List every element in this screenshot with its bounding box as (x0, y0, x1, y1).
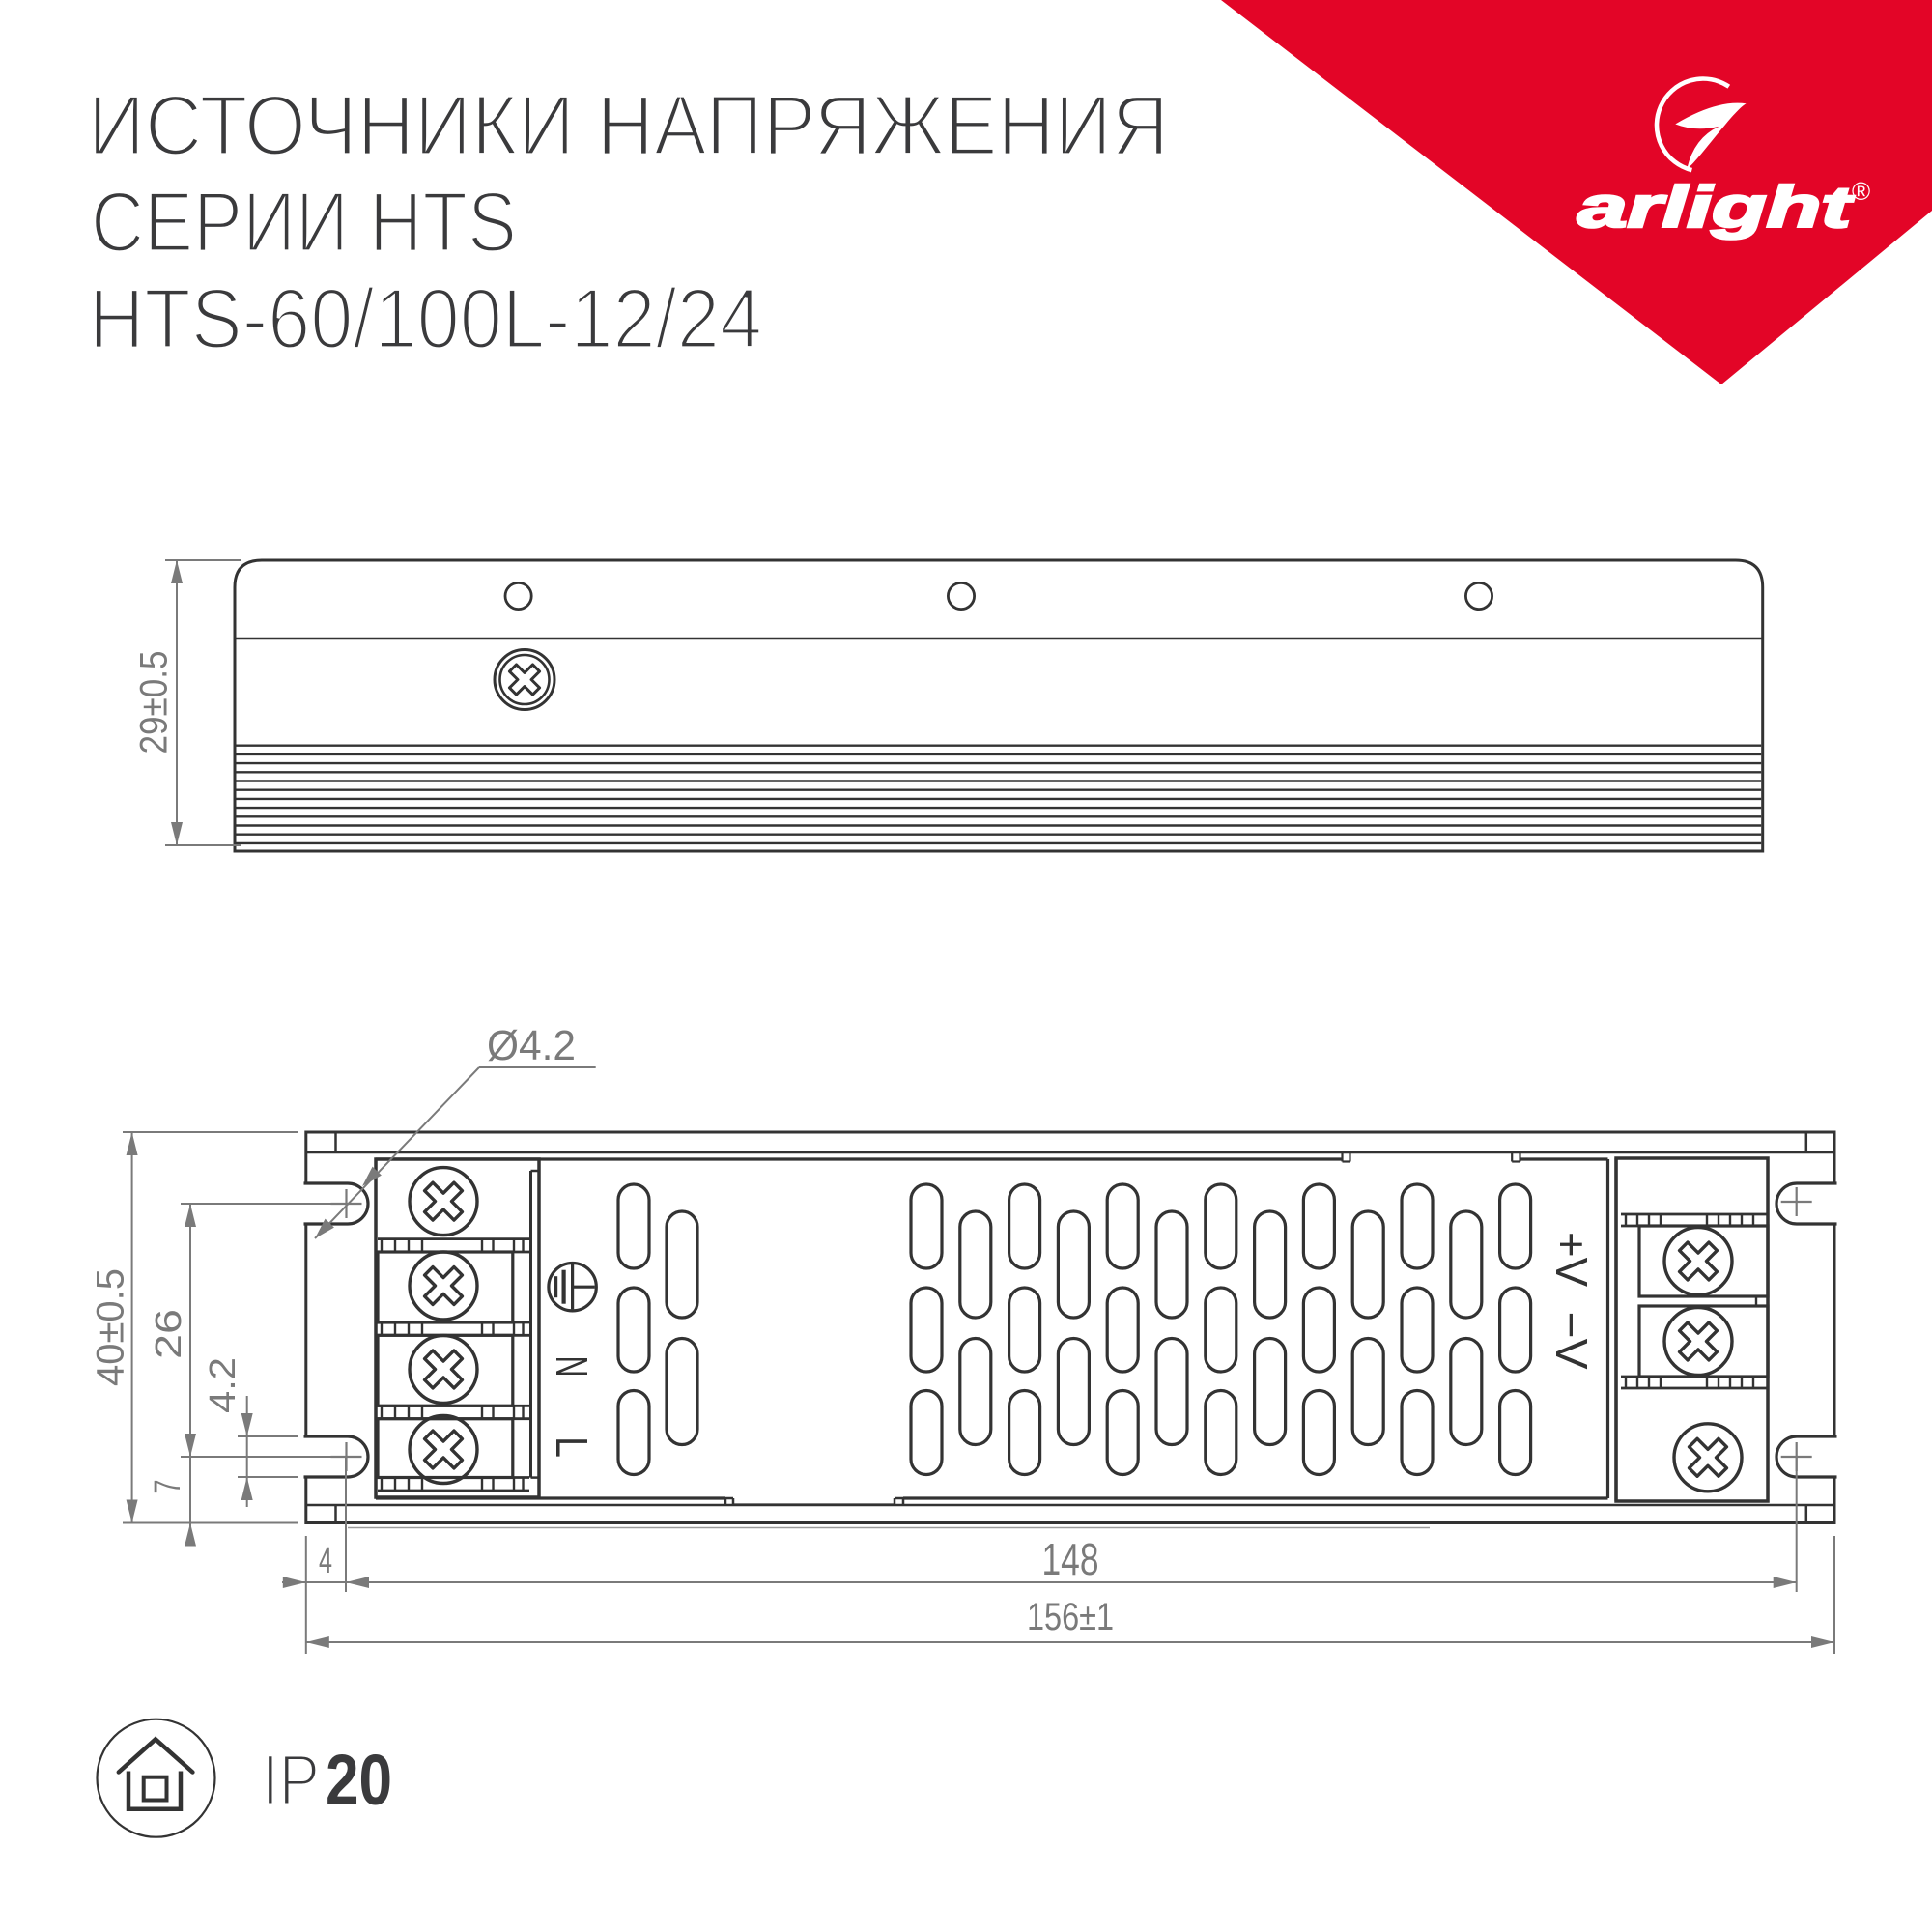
svg-text:−V: −V (1547, 1312, 1597, 1370)
svg-text:29±0.5: 29±0.5 (133, 651, 176, 754)
svg-text:20: 20 (326, 1740, 392, 1820)
svg-text:Ø4.2: Ø4.2 (487, 1022, 576, 1069)
svg-text:®: ® (1852, 177, 1870, 206)
svg-text:L: L (547, 1436, 597, 1458)
svg-text:148: 148 (1042, 1534, 1099, 1584)
svg-text:4.2: 4.2 (203, 1357, 243, 1413)
svg-text:arlight: arlight (1577, 175, 1856, 240)
svg-text:IP: IP (262, 1740, 320, 1820)
svg-text:26: 26 (149, 1309, 189, 1359)
svg-text:156±1: 156±1 (1027, 1596, 1114, 1638)
svg-text:ИСТОЧНИКИ НАПРЯЖЕНИЯ: ИСТОЧНИКИ НАПРЯЖЕНИЯ (88, 77, 1169, 173)
svg-text:HTS-60/100L-12/24: HTS-60/100L-12/24 (89, 270, 762, 366)
svg-text:40±0.5: 40±0.5 (90, 1268, 132, 1386)
svg-text:4: 4 (319, 1541, 332, 1581)
svg-text:7: 7 (148, 1480, 188, 1494)
svg-text:СЕРИИ HTS: СЕРИИ HTS (91, 174, 517, 270)
svg-text:+V: +V (1547, 1232, 1597, 1287)
svg-text:N: N (547, 1356, 597, 1378)
